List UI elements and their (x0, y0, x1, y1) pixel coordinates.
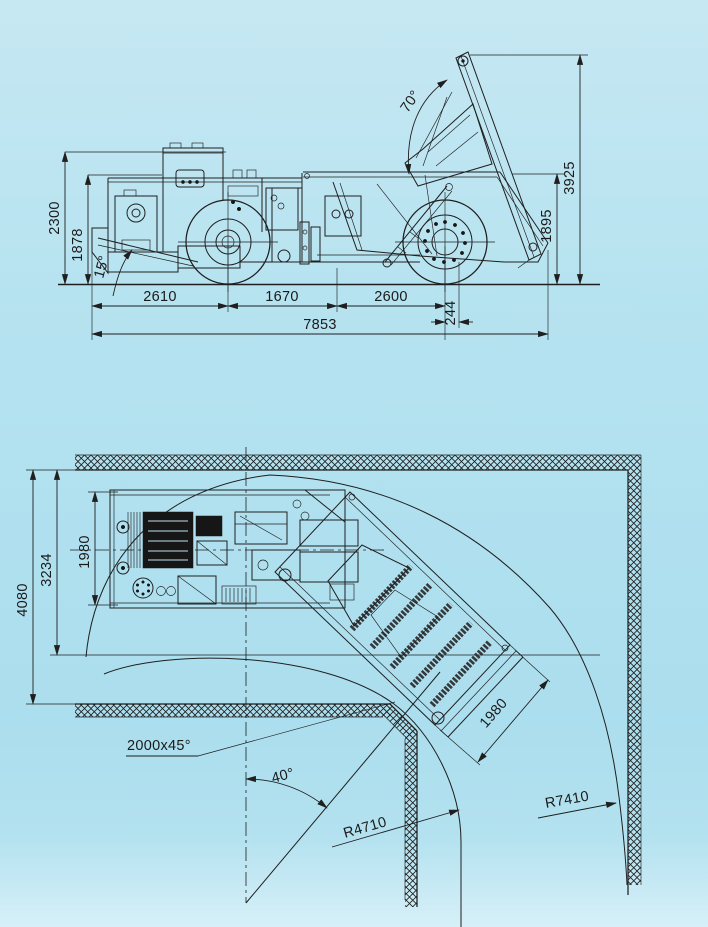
dim-turning-clearance: 3234 (39, 553, 55, 586)
dim-axle-offset: 244 (443, 300, 459, 325)
dim-front-section: 2610 (143, 289, 176, 305)
dim-tunnel-width: 4080 (15, 583, 31, 616)
dim-steer-angle: 40° (270, 765, 296, 786)
dim-tipping-angle: 70° (398, 88, 424, 116)
side-front-unit (92, 143, 420, 273)
tunnel-wall-hatch-branch (405, 731, 417, 907)
tunnel-wall-hatch-right (628, 455, 641, 885)
drawing-canvas: 2300 1878 15° 70° 1895 3925 (0, 0, 708, 927)
dim-outer-radius: R7410 (544, 789, 590, 812)
tunnel-wall-hatch-bottom (75, 704, 390, 717)
tunnel-wall-hatch-top (75, 455, 628, 470)
plan-view: 4080 3234 1980 1980 2000x45° 40° R4710 (15, 447, 641, 927)
articulation-joint (300, 222, 320, 264)
dim-canopy-height: 1878 (70, 228, 86, 261)
dim-corner-chamfer: 2000x45° (127, 738, 191, 754)
canopy (163, 148, 223, 178)
plan-front-unit (110, 490, 358, 608)
plan-dump-body (275, 492, 523, 737)
dim-middle-section: 1670 (265, 289, 298, 305)
dim-body-rear-height: 1895 (539, 209, 555, 242)
dump-body-raised (405, 52, 541, 268)
dim-overall-height: 2300 (47, 201, 63, 234)
dim-tipping-height: 3925 (562, 161, 578, 194)
dump-body-lowered (303, 172, 548, 262)
technical-drawing: 2300 1878 15° 70° 1895 3925 (0, 0, 708, 927)
dim-approach-angle: 15° (91, 254, 112, 280)
dim-machine-width: 1980 (77, 535, 93, 568)
side-view: 2300 1878 15° 70° 1895 3925 (47, 52, 600, 340)
engine-pulley (127, 204, 145, 222)
dim-rear-section: 2600 (374, 289, 407, 305)
plan-dimensions: 4080 3234 1980 1980 2000x45° 40° R4710 (15, 470, 616, 847)
dim-overall-length: 7853 (303, 317, 336, 333)
